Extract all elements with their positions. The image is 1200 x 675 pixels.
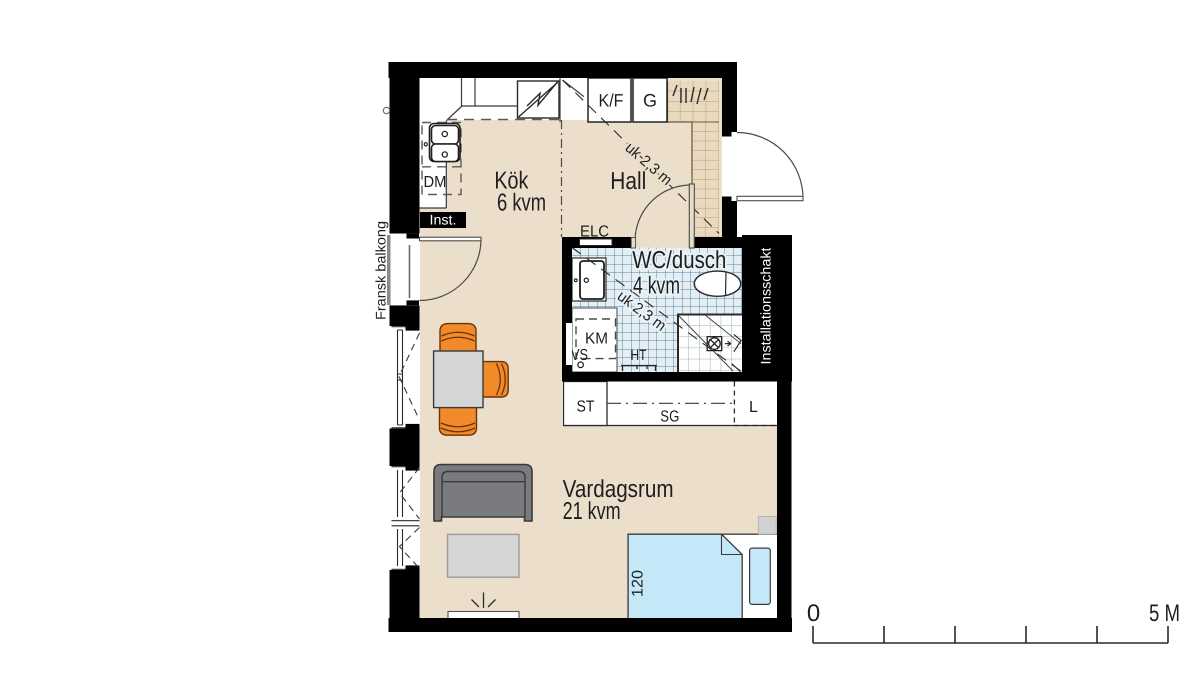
svg-text:KM: KM: [585, 331, 608, 348]
svg-text:K/F: K/F: [599, 91, 624, 111]
svg-text:SG: SG: [660, 409, 679, 426]
svg-text:21 kvm: 21 kvm: [563, 498, 621, 525]
svg-text:Inst.: Inst.: [430, 212, 457, 228]
svg-text:WC/dusch: WC/dusch: [632, 247, 726, 274]
svg-text:L: L: [749, 399, 758, 416]
svg-text:Installationsschakt: Installationsschakt: [758, 247, 774, 364]
svg-text:G: G: [643, 91, 657, 111]
svg-text:6 kvm: 6 kvm: [497, 190, 546, 217]
svg-text:0: 0: [807, 600, 820, 627]
svg-text:DM: DM: [424, 174, 447, 191]
svg-text:120: 120: [630, 570, 647, 597]
svg-text:HT: HT: [631, 347, 647, 364]
svg-text:ELC: ELC: [580, 224, 609, 241]
svg-text:5 M: 5 M: [1149, 600, 1180, 627]
svg-text:Hall: Hall: [610, 168, 646, 195]
svg-text:4 kvm: 4 kvm: [633, 273, 680, 300]
svg-text:VS: VS: [571, 347, 588, 364]
svg-text:ST: ST: [577, 399, 595, 416]
svg-text:Fransk balkong: Fransk balkong: [373, 221, 389, 320]
